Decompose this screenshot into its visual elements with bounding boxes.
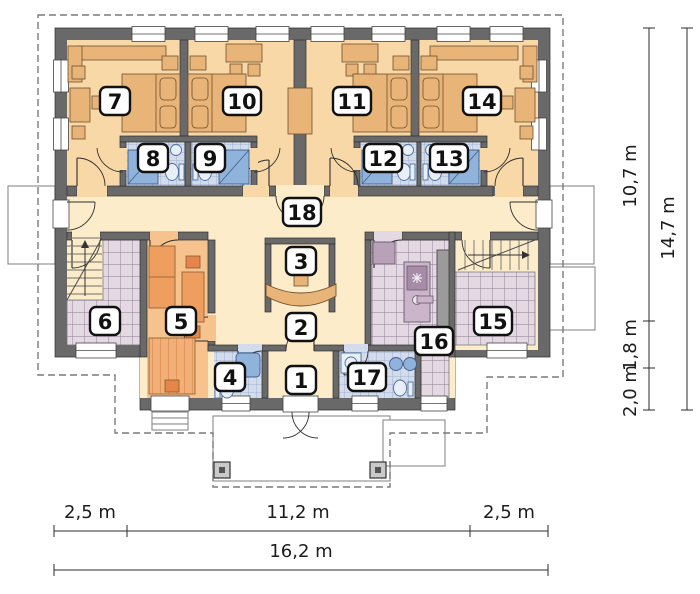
floor-plan-page: 1 2 3 4 5 6 7 8 9 10 11 12 13 14 15 16 1…: [0, 0, 700, 594]
svg-text:3: 3: [294, 250, 309, 274]
svg-text:15: 15: [478, 310, 507, 334]
right-lower-terrace-slab: [545, 267, 595, 330]
room-badge-10: 10: [223, 87, 261, 115]
room-badge-4: 4: [215, 363, 245, 391]
svg-text:5: 5: [174, 310, 189, 334]
room-badge-8: 8: [138, 144, 168, 172]
dim-bottom-right: 2,5 m: [483, 502, 535, 523]
dim-right-total: 14,7 m: [658, 196, 679, 259]
svg-text:10: 10: [227, 90, 256, 114]
room-badge-2: 2: [286, 313, 316, 341]
window: [487, 343, 527, 358]
window: [311, 27, 344, 42]
room-badge-12: 12: [364, 144, 402, 172]
room-badge-14: 14: [463, 87, 501, 115]
dim-right-lower: 2,0 m: [620, 365, 641, 417]
dim-right-middle: 1,8 m: [620, 319, 641, 371]
svg-text:18: 18: [287, 201, 316, 225]
room-badge-6: 6: [90, 307, 120, 335]
front-porch-slab: [213, 416, 390, 481]
window: [54, 118, 69, 150]
porch-column: [370, 462, 386, 478]
dim-right-upper: 10,7 m: [620, 144, 641, 207]
dim-bottom-center: 11,2 m: [266, 502, 329, 523]
room-badge-5: 5: [166, 307, 196, 335]
room-badge-1: 1: [286, 366, 316, 394]
room-badge-7: 7: [100, 87, 130, 115]
dim-bottom-left: 2,5 m: [64, 502, 116, 523]
room-badge-3: 3: [286, 247, 316, 275]
svg-text:12: 12: [368, 147, 397, 171]
left-terrace-slab: [8, 186, 55, 264]
svg-text:8: 8: [146, 147, 161, 171]
window: [532, 118, 547, 150]
svg-text:1: 1: [294, 369, 309, 393]
window: [421, 396, 447, 411]
window: [256, 27, 289, 42]
window: [54, 60, 69, 92]
svg-text:6: 6: [98, 310, 113, 334]
svg-text:11: 11: [337, 90, 366, 114]
room-badge-18: 18: [283, 198, 321, 226]
room-badge-11: 11: [333, 87, 371, 115]
room-badge-13: 13: [430, 144, 468, 172]
door: [151, 396, 189, 411]
svg-text:17: 17: [352, 366, 381, 390]
svg-text:9: 9: [203, 147, 218, 171]
window: [437, 27, 470, 42]
window: [132, 27, 165, 42]
room-badge-9: 9: [195, 144, 225, 172]
right-upper-terrace-slab: [550, 186, 594, 264]
svg-text:7: 7: [108, 90, 123, 114]
room-badge-15: 15: [474, 307, 512, 335]
svg-text:4: 4: [223, 366, 238, 390]
window: [76, 343, 116, 358]
svg-text:16: 16: [419, 330, 448, 354]
room-badge-17: 17: [348, 363, 386, 391]
dim-bottom-total: 16,2 m: [269, 541, 332, 562]
svg-text:14: 14: [467, 90, 496, 114]
window: [372, 27, 405, 42]
floor-plan-drawing: 1 2 3 4 5 6 7 8 9 10 11 12 13 14 15 16 1…: [0, 0, 700, 594]
window: [195, 27, 228, 42]
porch-column: [214, 462, 230, 478]
central-wardrobe: [288, 88, 312, 134]
room-badge-16: 16: [415, 327, 453, 355]
svg-text:13: 13: [434, 147, 463, 171]
exterior-steps: [152, 412, 188, 430]
porch-side-slab: [383, 420, 445, 466]
window: [490, 27, 523, 42]
svg-text:2: 2: [294, 316, 309, 340]
window: [352, 396, 378, 411]
